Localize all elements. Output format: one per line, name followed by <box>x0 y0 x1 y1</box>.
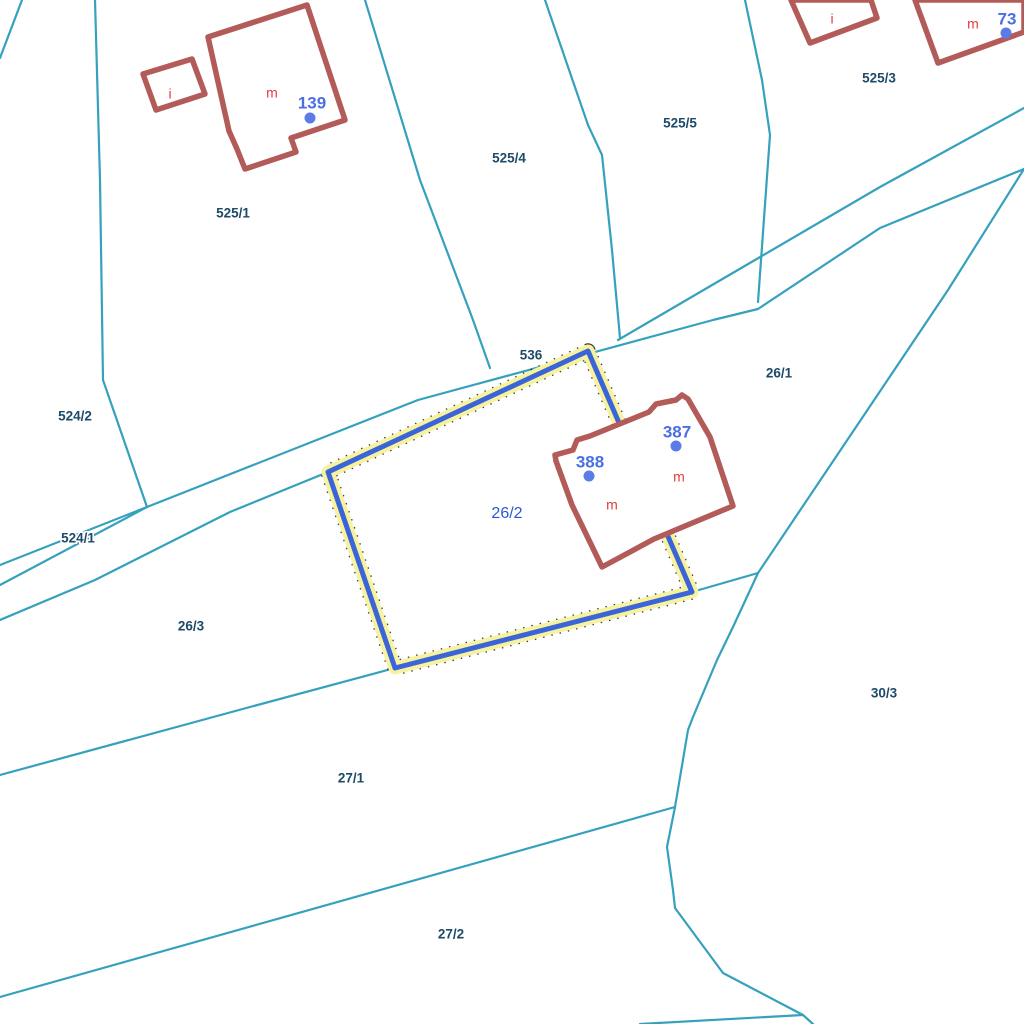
building-usage-letter: m <box>673 469 685 485</box>
building-point-dot <box>1001 28 1012 39</box>
building-point-dot <box>671 441 682 452</box>
building-number-label: 73 <box>998 9 1017 28</box>
parcel-label[interactable]: 27/2 <box>438 927 464 942</box>
parcel-label[interactable]: 524/1 <box>61 531 95 546</box>
building-usage-letter: m <box>266 85 278 101</box>
cadastral-map-viewport[interactable]: immmim13938838773525/1525/4525/5525/3524… <box>0 0 1024 1024</box>
building-number-label: 139 <box>298 93 326 112</box>
selected-parcel-label[interactable]: 26/2 <box>491 505 522 522</box>
building-number-label: 387 <box>663 422 691 441</box>
building-usage-letter: i <box>830 11 833 27</box>
parcel-label[interactable]: 536 <box>520 348 543 363</box>
building-point-dot <box>584 471 595 482</box>
parcel-label[interactable]: 30/3 <box>871 686 898 701</box>
parcel-label[interactable]: 26/1 <box>766 366 793 381</box>
parcel-label[interactable]: 27/1 <box>338 771 365 786</box>
building-usage-letter: m <box>967 16 979 32</box>
building-point-dot <box>305 113 316 124</box>
parcel-label[interactable]: 524/2 <box>58 409 92 424</box>
parcel-label[interactable]: 26/3 <box>178 619 205 634</box>
parcel-label[interactable]: 525/3 <box>862 71 896 86</box>
map-canvas[interactable]: immmim13938838773525/1525/4525/5525/3524… <box>0 0 1024 1024</box>
building-number-label: 388 <box>576 452 604 471</box>
building-usage-letter: i <box>168 86 171 102</box>
parcel-label[interactable]: 525/4 <box>492 151 526 166</box>
building-usage-letter: m <box>606 497 618 513</box>
parcel-label[interactable]: 525/5 <box>663 116 697 131</box>
parcel-label[interactable]: 525/1 <box>216 206 250 221</box>
